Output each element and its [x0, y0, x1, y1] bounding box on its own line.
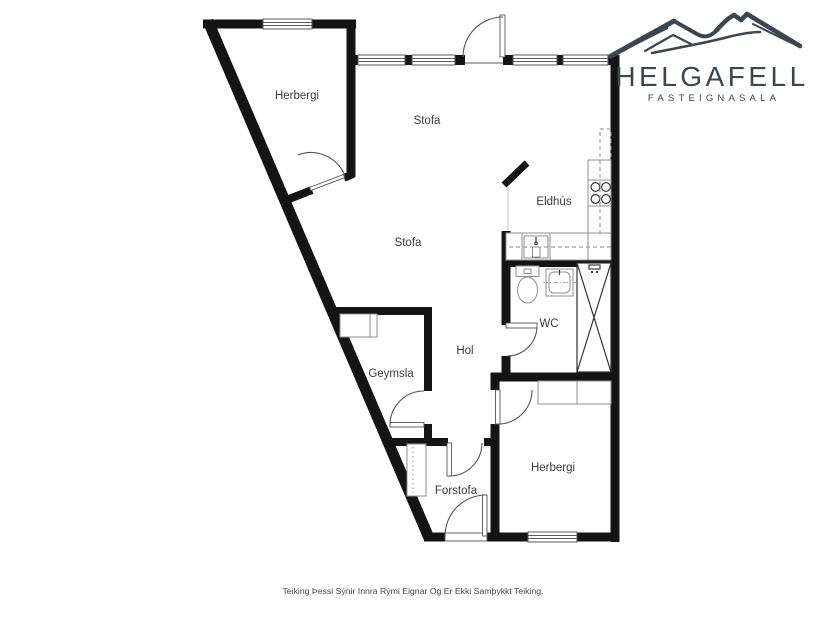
kitchen-fixtures [506, 129, 611, 260]
window-stofa-2 [412, 55, 455, 65]
hall-closet [407, 444, 426, 496]
logo-mountains-icon [611, 14, 800, 56]
room-label-wc: WC [539, 318, 558, 330]
room-label-hol: Hol [456, 345, 473, 357]
logo: HELGAFELL FASTEIGNASALA [611, 14, 809, 104]
logo-name: HELGAFELL [615, 61, 808, 92]
disclaimer-text: Teiking Þessi Sýnir Innra Rými Eignar Og… [282, 586, 543, 596]
door-geymsla [390, 391, 424, 427]
toilet [516, 266, 539, 303]
door-bedroom1 [298, 153, 345, 191]
room-label-geymsla: Geymsla [368, 368, 414, 380]
wc-fixtures [516, 263, 611, 372]
window-bedroom2 [528, 532, 577, 542]
door-wc [506, 323, 537, 356]
bedroom-closet [538, 381, 611, 404]
door-balcony [463, 15, 505, 63]
floor-plan-page: Herbergi Stofa Eldhús Stofa WC Hol Geyms… [0, 0, 827, 620]
floor-plan-svg: Herbergi Stofa Eldhús Stofa WC Hol Geyms… [0, 0, 827, 620]
washbasin [543, 269, 576, 296]
storage-shelf [340, 314, 377, 337]
door-bedroom2 [496, 390, 533, 424]
room-label-herbergi-2: Herbergi [531, 462, 575, 474]
window-stofa-1 [358, 55, 405, 65]
window-stofa-4 [563, 55, 608, 65]
room-label-stofa-2: Stofa [395, 237, 422, 249]
window-stofa-3 [513, 55, 557, 65]
shower [577, 263, 611, 372]
room-label-forstofa: Forstofa [435, 485, 478, 497]
room-label-stofa-1: Stofa [414, 115, 441, 127]
room-label-eldhus: Eldhús [536, 196, 571, 208]
logo-tagline: FASTEIGNASALA [648, 93, 780, 104]
door-entrance [445, 495, 487, 541]
door-forstofa [447, 443, 482, 476]
room-label-herbergi-1: Herbergi [275, 90, 319, 102]
window-bedroom1 [263, 19, 312, 29]
